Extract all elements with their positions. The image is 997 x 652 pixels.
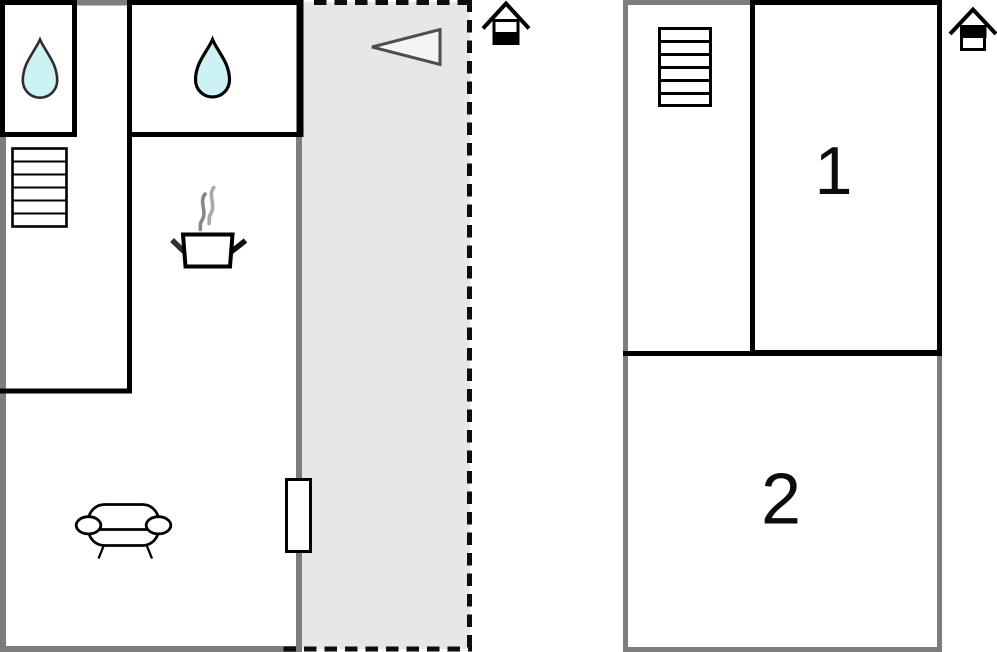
svg-text:2: 2 <box>761 460 801 540</box>
svg-text:1: 1 <box>815 133 853 209</box>
